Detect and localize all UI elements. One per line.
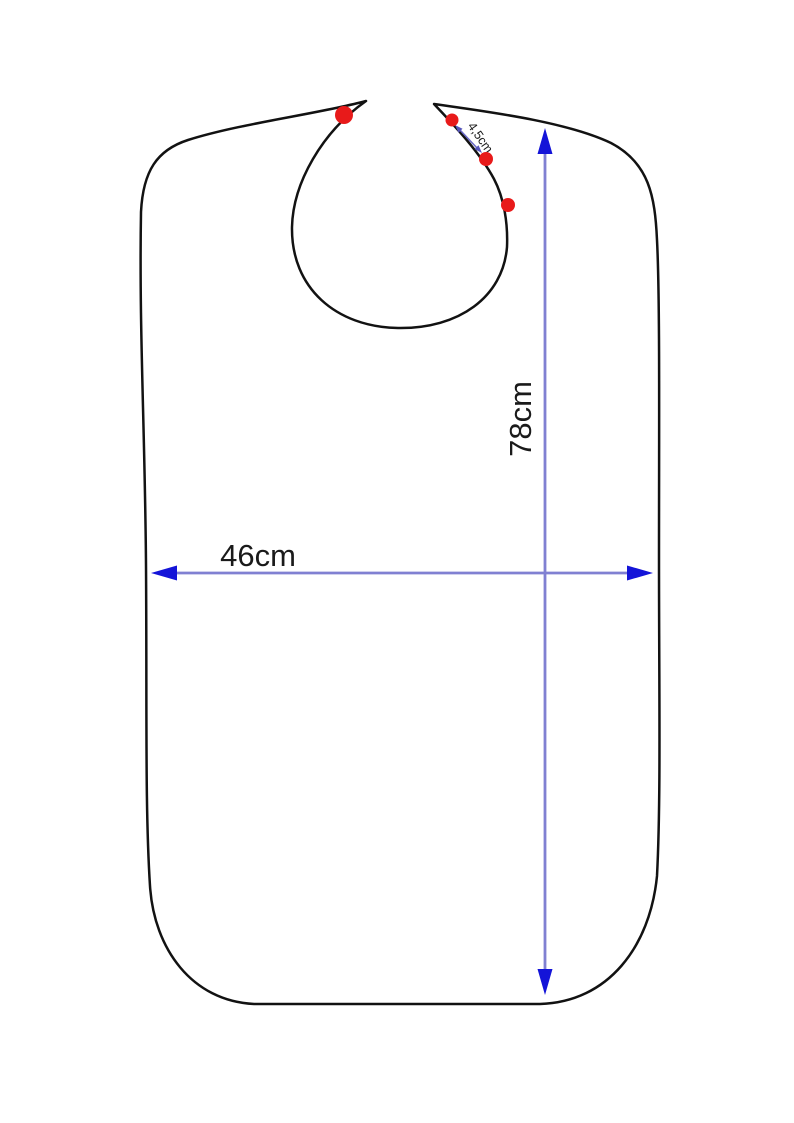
bib-outline xyxy=(141,101,660,1004)
snap-dot-right-2 xyxy=(479,152,493,166)
snap-dot-left-tab xyxy=(335,106,353,124)
bib-pattern-diagram: 78cm 46cm 4,5cm xyxy=(0,0,794,1123)
width-label: 46cm xyxy=(220,538,296,573)
snap-dot-right-1 xyxy=(446,114,459,127)
height-label: 78cm xyxy=(503,381,538,457)
pattern-canvas: 78cm 46cm 4,5cm xyxy=(0,0,794,1123)
snap-dot-right-3 xyxy=(501,198,515,212)
